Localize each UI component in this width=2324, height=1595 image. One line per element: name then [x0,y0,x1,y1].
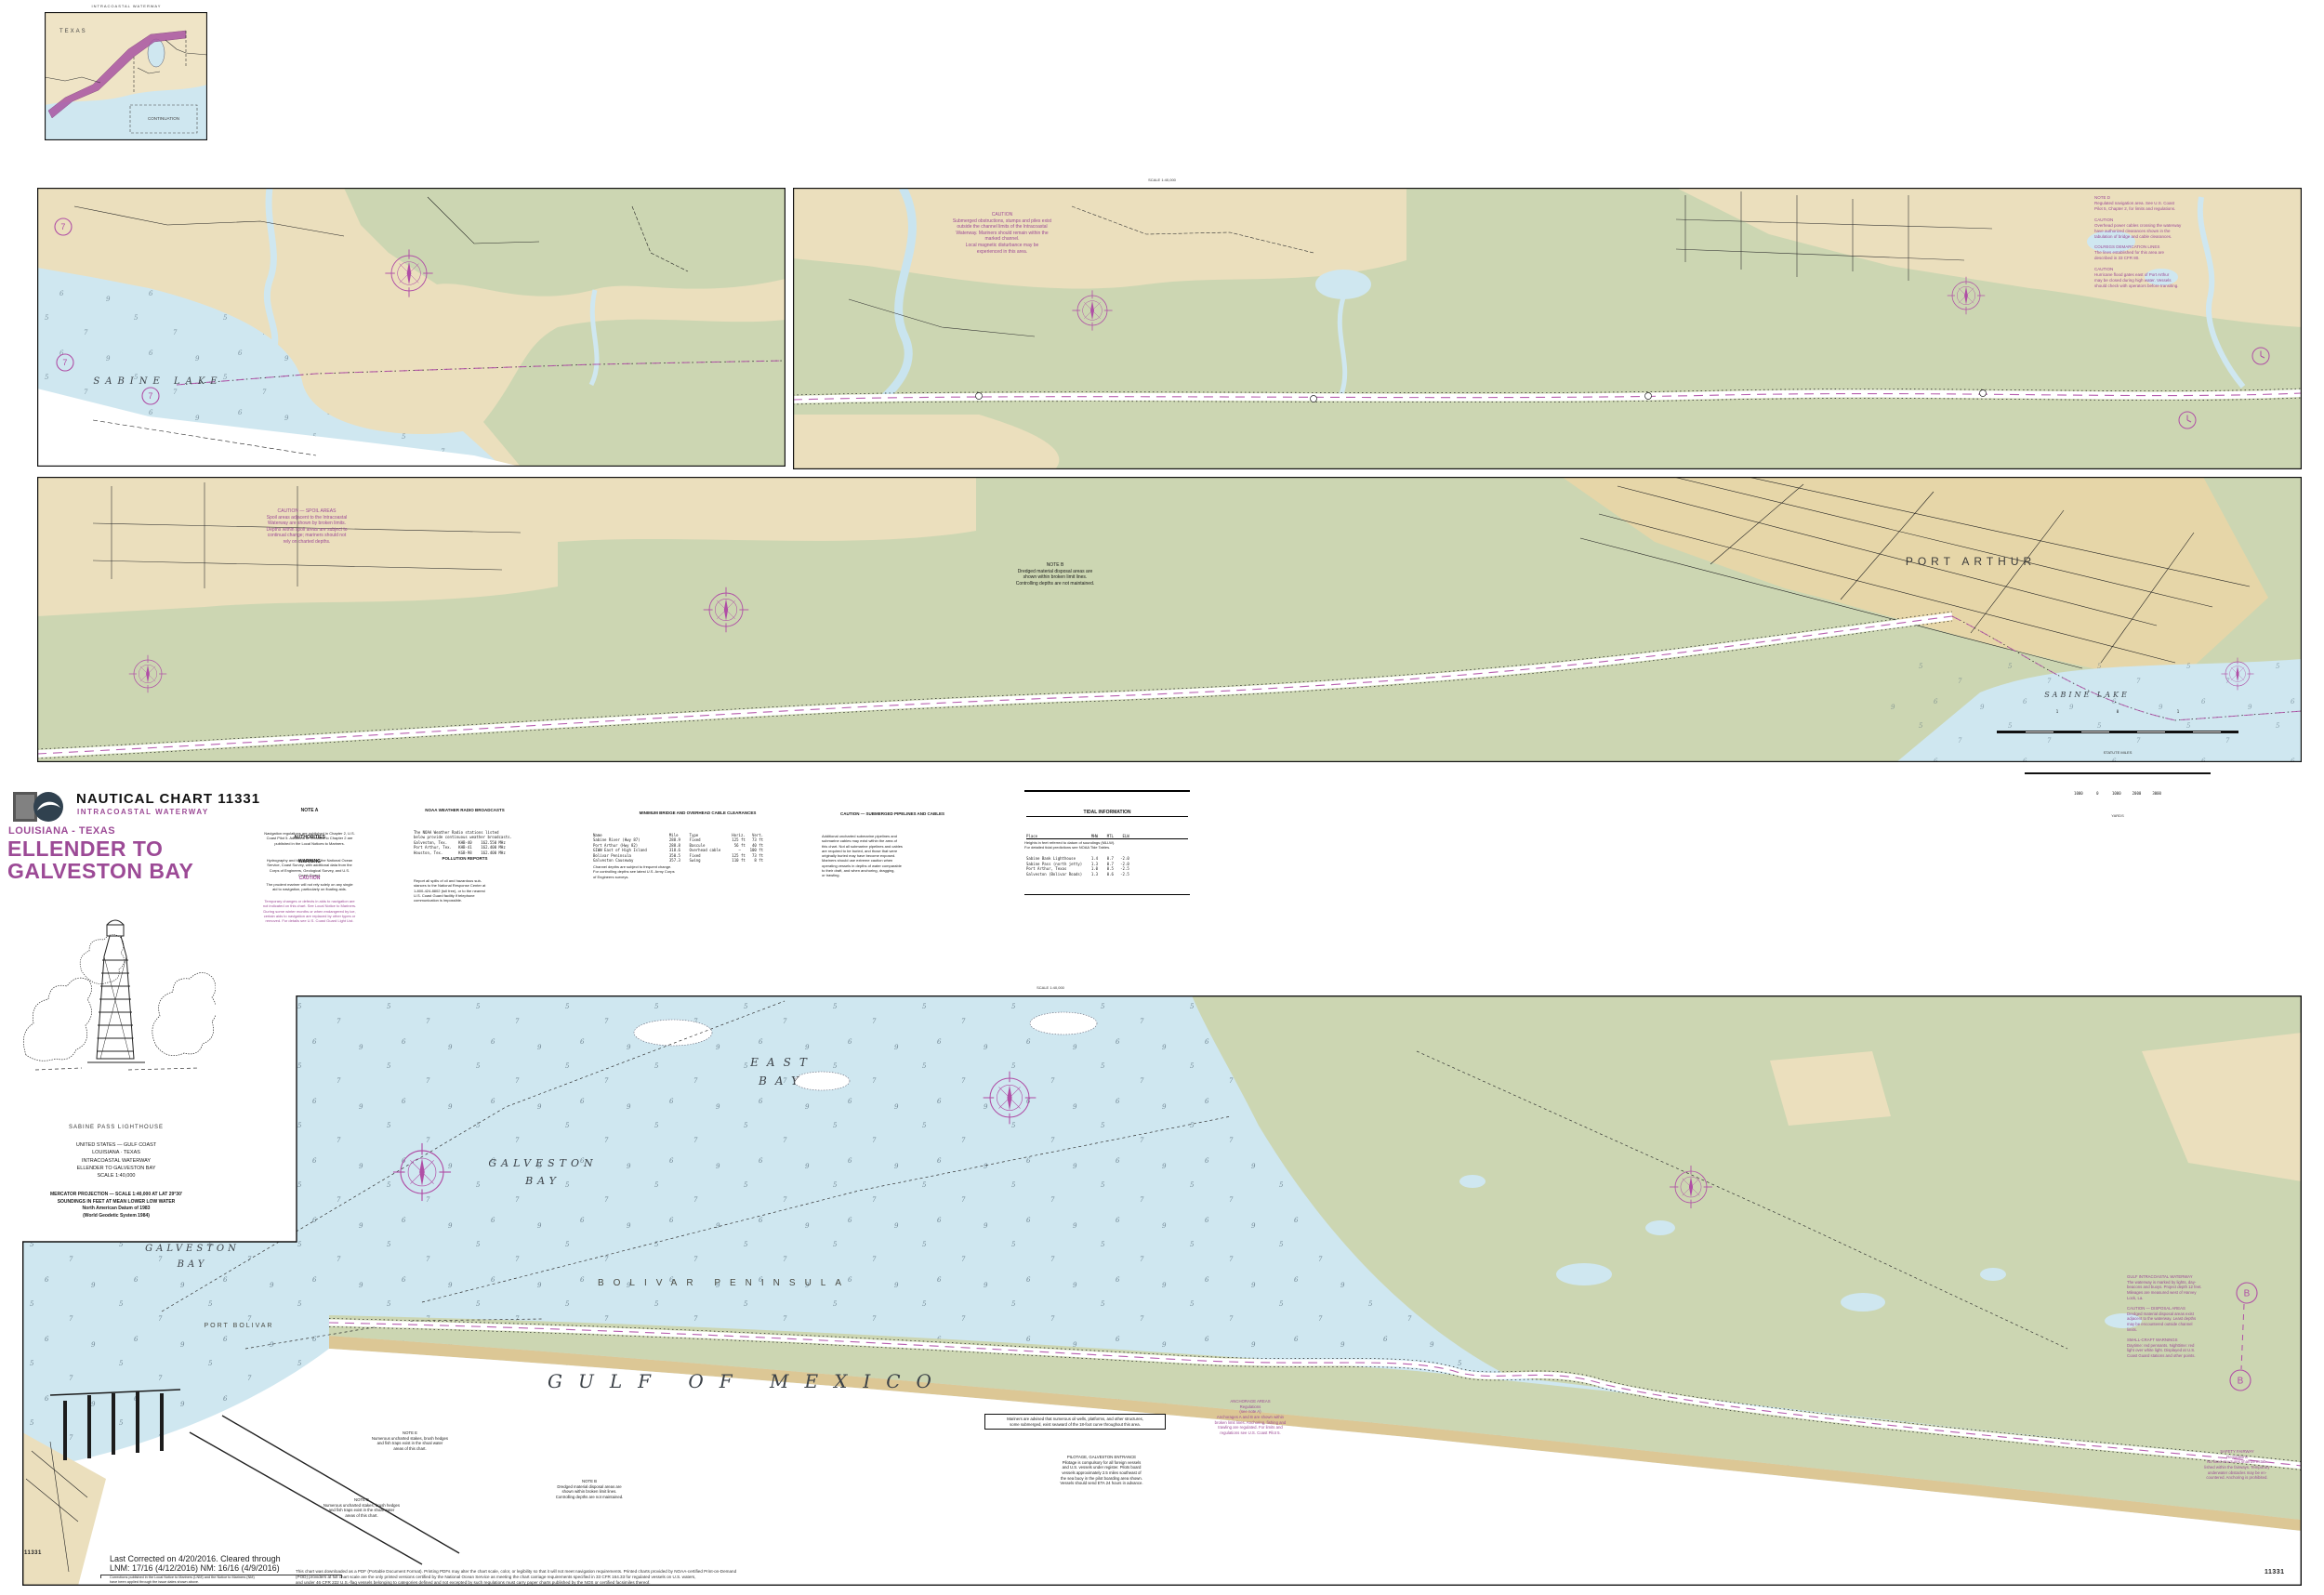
header-depths-note: Channel depths are subject to frequent c… [593,864,733,879]
gulf-of-mexico-label: GULF OF MEXICO [524,1365,971,1397]
strip2-caution-note: CAUTION — SPOIL AREAS Spoil areas adjace… [209,508,404,546]
tide-table-rows: Sabine Bank Lighthouse 1.4 0.7 -2.0 Sabi… [1026,856,1188,877]
svg-text:7: 7 [62,358,67,367]
strip1-side-notes: NOTE D Regulated navigation area. See U.… [2094,195,2290,289]
port-bolivar-label: PORT BOLIVAR [188,1323,290,1329]
tide-note: Heights in feet referred to datum of sou… [1024,840,1190,850]
caution-body: Temporary changes or defects in aids to … [253,899,366,923]
bridge-table-body: Name Mile Type Horiz. Vert. Sabine River… [593,833,802,863]
header-caution: CAUTION Temporary changes or defects in … [253,859,366,940]
pipelines-title: CAUTION — SUBMERGED PIPELINES AND CABLES [822,811,963,816]
gulf-pilot2-note: NOTE B Dredged material disposal areas a… [524,1479,654,1500]
tan-patch [1770,1051,1891,1126]
strip1-left-map: 7 7 7 [37,188,786,467]
yards-ticks: 1000 0 1000 2000 3000 [1997,791,2238,796]
gulf-note-e: NOTE E Numerous uncharted stakes, brush … [350,1430,470,1452]
note-a-title: NOTE A [253,808,366,813]
galveston-scale-label: SCALE 1:40,000 [985,985,1116,990]
chart-name-line1: ELLENDER TO [7,837,163,862]
galveston-bay-e-label: GALVESTON BAY [469,1155,617,1190]
gulf-anchorage-note: ANCHORAGE AREAS Regulations (see note A)… [1195,1399,1306,1436]
noaa-logo [11,788,71,825]
tide-table-title: TIDAL INFORMATION [1026,810,1188,817]
header-pollution: POLLUTION REPORTS Report all spills of o… [414,839,516,919]
galveston-panel: B B EAST BAY GALVESTON BAY GALVESTON BAY… [22,995,2302,1586]
inset-title: INTRACOASTAL WATERWAY [52,4,201,8]
land2 [558,477,976,542]
nautical-chart-page: 5 7 6 9 INTRACOASTAL WATERWAY TEXAS [0,0,2324,1595]
pollution-body: Report all spills of oil and hazardous s… [414,878,516,903]
bolivar-peninsula-label: BOLIVAR PENINSULA [552,1278,896,1288]
authorities-title: AUTHORITIES [253,835,366,840]
inset-map-panel: TEXAS CONTINUATION [45,12,207,140]
port-arthur-label: PORT ARTHUR [1873,555,2068,568]
inset-texas-label: TEXAS [59,29,87,34]
miles-bar [1997,731,2238,733]
pollution-title: POLLUTION REPORTS [414,856,516,861]
strip2-note-b: NOTE B Dredged material disposal areas a… [976,562,1134,587]
chart-number-left: 11331 [24,1550,42,1556]
strip1-caution-note: CAUTION Submerged obstructions, stumps a… [891,212,1114,255]
gulf-pilotage-note: PILOTAGE, GALVESTON ENTRANCE Pilotage is… [1032,1455,1171,1486]
chart-number-right: 11331 [2265,1569,2285,1575]
strip1-left-panel: 7 7 7 SABINE LAKE [37,188,786,467]
svg-text:B: B [2238,1377,2244,1387]
inset-continuation-label: CONTINUATION [134,116,193,121]
caution-title: CAUTION [253,876,366,881]
east-bay-label: EAST BAY [708,1053,857,1091]
header-pipelines: CAUTION — SUBMERGED PIPELINES AND CABLES… [822,795,963,894]
gulf-fairway-note: SAFETY FAIRWAY Regulations No fixed stru… [2188,1449,2286,1481]
chart-title: NAUTICAL CHART 11331 [76,791,260,807]
bolivar-right-note: GULF INTRACOASTAL WATERWAY The waterway … [2127,1274,2220,1359]
corrected-line1: Last Corrected on 4/20/2016. Cleared thr… [110,1554,281,1563]
svg-text:7: 7 [148,391,152,401]
strip2-panel: PORT ARTHUR SABINE LAKE CAUTION — SPOIL … [37,477,2302,762]
pdf-disclaimer: This chart was downloaded as a PDF (Port… [296,1569,853,1586]
sabine-lake-label: SABINE LAKE [74,374,242,389]
svg-text:B: B [2244,1289,2251,1299]
svg-text:7: 7 [60,222,65,231]
galveston-bay-w-label: GALVESTON BAY [123,1241,262,1272]
wx-title: NOAA WEATHER RADIO BROADCASTS [414,808,516,812]
chart-name-line2: GALVESTON BAY [7,859,193,884]
lake [1315,270,1371,299]
yards-bar [2025,772,2211,774]
strip1-scale-label: SCALE 1:40,000 [1097,178,1227,182]
chart-subtitle: INTRACOASTAL WATERWAY [77,808,209,816]
bridge-table-title: MINIMUM BRIDGE AND OVERHEAD CABLE CLEARA… [593,811,802,815]
strip1-right-panel: CAUTION Submerged obstructions, stumps a… [793,188,2302,469]
yards-label: YARDS [1997,813,2238,818]
gulf-caution3-note: NOTE E Numerous uncharted stakes, brush … [301,1497,422,1519]
pipelines-body: Additional uncharted submarine pipelines… [822,834,963,877]
gulf-boxed-note: Mariners are advised that numerous oil w… [984,1414,1166,1430]
miles-label: STATUTE MILES [1997,750,2238,755]
scale-bars: 1 0 1 STATUTE MILES 1000 0 1000 2000 300… [1997,692,2238,835]
chart-region: LOUISIANA - TEXAS [8,825,115,837]
tide-table-head: Place MHW MTL ELW [1026,834,1188,839]
logo-circle [33,792,63,822]
corrected-line2: LNM: 17/16 (4/12/2016) NM: 16/16 (4/9/20… [110,1563,280,1573]
miles-ticks: 1 0 1 [1997,709,2238,714]
